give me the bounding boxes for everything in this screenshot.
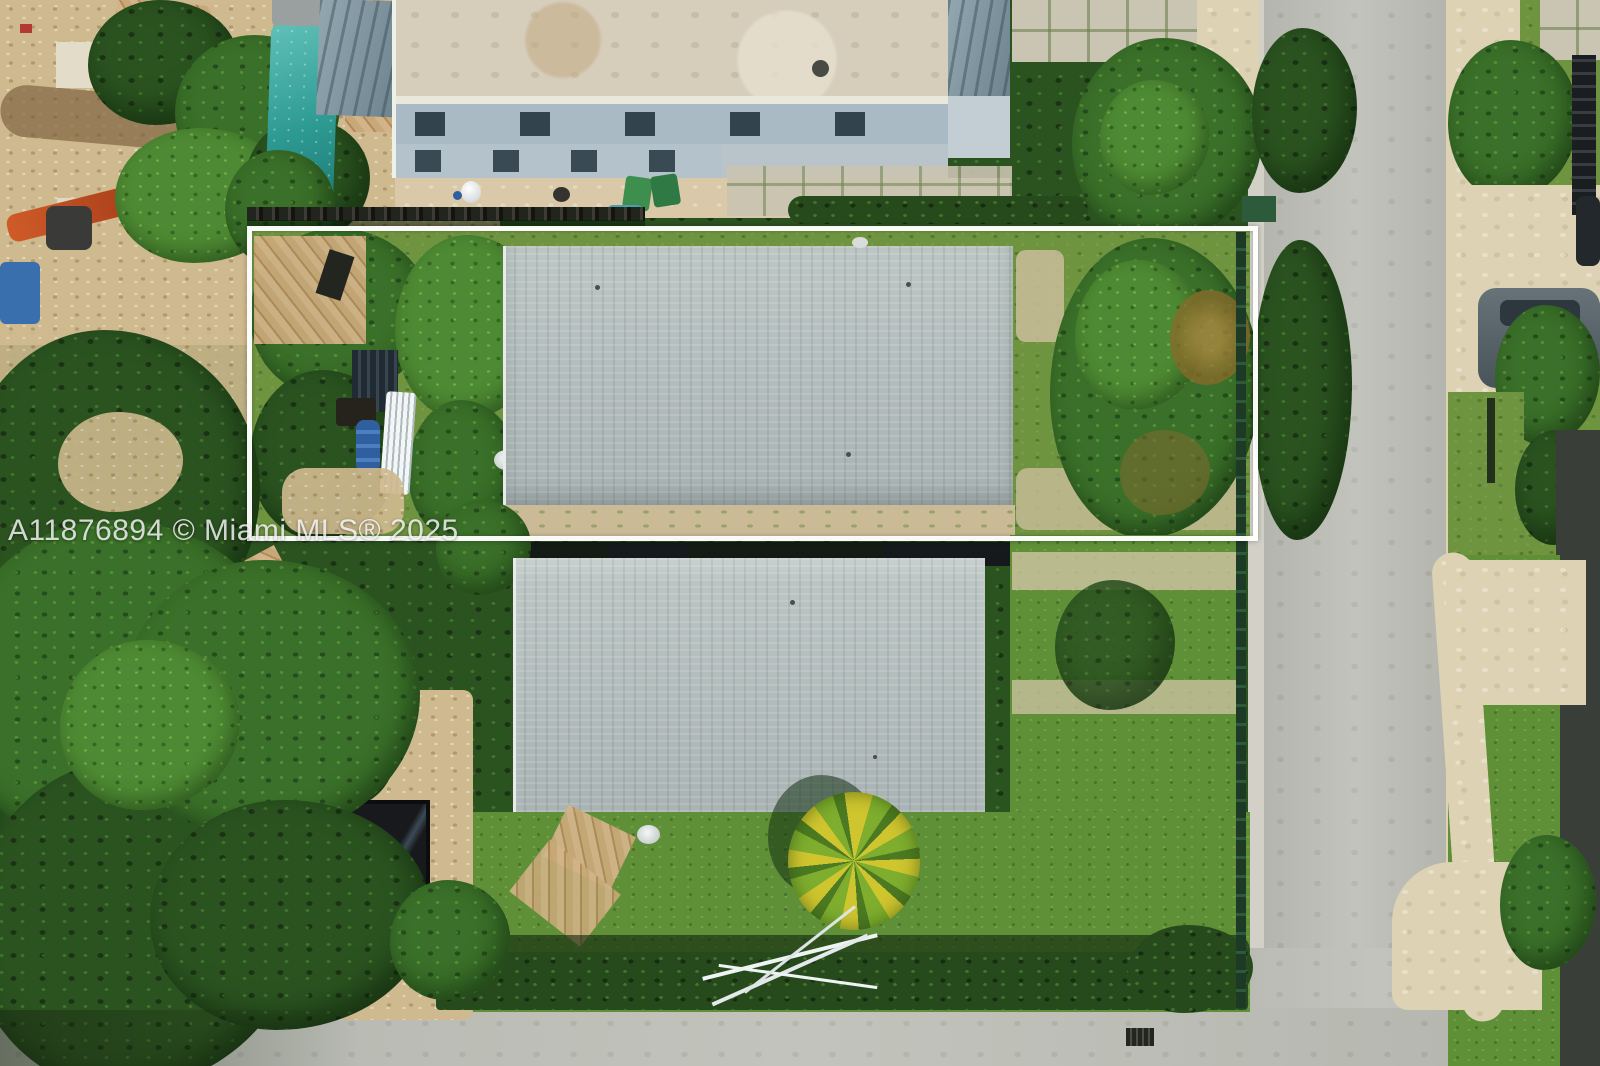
building-parapet bbox=[395, 96, 955, 104]
metal-roof-left bbox=[316, 0, 400, 117]
yellow-palm-tree bbox=[788, 792, 920, 930]
red-marker bbox=[20, 24, 32, 33]
metal-roof-right bbox=[948, 0, 1010, 96]
window-row bbox=[415, 150, 715, 172]
house2-roof-dot-2 bbox=[873, 755, 877, 759]
blue-tarp bbox=[0, 262, 40, 324]
tree-trunk-shadow bbox=[1487, 398, 1495, 483]
aerial-photo-canvas: A11876894 © Miami MLS® 2025 bbox=[0, 0, 1600, 1066]
paver-court-topright bbox=[1540, 0, 1600, 60]
hedge-top bbox=[788, 196, 1088, 224]
water-tank bbox=[461, 181, 481, 203]
dark-roof-right-edge bbox=[1556, 430, 1600, 1066]
skylight-row bbox=[415, 112, 940, 136]
property-boundary-overlay bbox=[247, 226, 1258, 541]
turf-mat-2 bbox=[650, 173, 682, 208]
street-shadow-bottomleft bbox=[0, 1010, 360, 1066]
driveway-right-2 bbox=[1446, 560, 1586, 705]
house2-roof-dot-1 bbox=[790, 600, 795, 605]
blue-bucket bbox=[453, 191, 462, 200]
building-right-wall bbox=[948, 96, 1010, 158]
storm-drain-grate bbox=[1126, 1028, 1154, 1046]
satellite-dish-lawn bbox=[637, 825, 660, 844]
excavator-cab bbox=[46, 206, 92, 250]
utility-box-green bbox=[1242, 196, 1276, 222]
house2-roof bbox=[513, 558, 985, 818]
metal-fence-right bbox=[1572, 55, 1596, 215]
mls-watermark: A11876894 © Miami MLS® 2025 bbox=[8, 514, 459, 548]
parked-car-top bbox=[1576, 196, 1600, 266]
building-left-edge bbox=[392, 0, 396, 178]
wire-roll bbox=[553, 187, 570, 202]
roof-vent bbox=[812, 60, 829, 77]
building-flat-roof bbox=[395, 0, 955, 100]
wood-fence-top bbox=[247, 207, 645, 221]
